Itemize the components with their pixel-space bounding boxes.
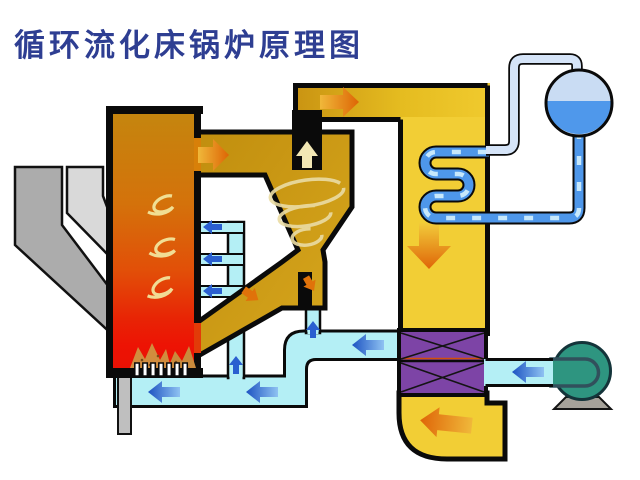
forced-draft-fan — [484, 343, 611, 410]
air-preheater-box — [399, 330, 486, 395]
grid-nozzles — [135, 363, 188, 376]
fan-inlet-scroll — [551, 359, 599, 386]
drum-water-space — [546, 101, 612, 134]
ash-drain-pipe — [118, 374, 131, 434]
seam-cover — [230, 375, 243, 380]
seam-cover — [230, 224, 243, 232]
boiler-diagram-page: 循环流化床锅炉原理图 — [0, 0, 640, 480]
cyclone-body — [197, 132, 352, 356]
furnace-chamber — [110, 110, 200, 378]
steam-drum — [546, 70, 612, 136]
boiler-diagram — [0, 0, 640, 480]
solids-return-opening — [194, 323, 201, 353]
page-title: 循环流化床锅炉原理图 — [14, 20, 364, 65]
feed-chutes — [15, 167, 115, 337]
air-preheater — [399, 330, 486, 395]
seam-cover — [230, 256, 243, 264]
